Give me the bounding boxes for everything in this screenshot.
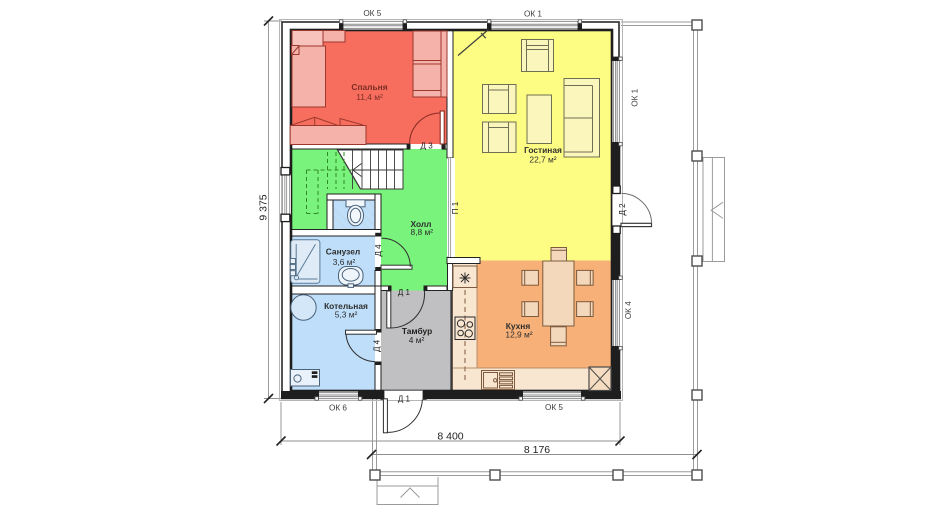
svg-text:11,4 м²: 11,4 м² bbox=[356, 92, 383, 102]
svg-text:8 176: 8 176 bbox=[524, 444, 550, 456]
svg-text:ОК 6: ОК 6 bbox=[329, 403, 347, 412]
svg-text:9 375: 9 375 bbox=[258, 194, 270, 220]
svg-text:ОК 1: ОК 1 bbox=[630, 88, 639, 106]
svg-text:12,9 м²: 12,9 м² bbox=[505, 330, 532, 340]
svg-text:Д 4: Д 4 bbox=[372, 339, 381, 352]
svg-text:8 400: 8 400 bbox=[437, 430, 463, 442]
svg-text:ОК 5: ОК 5 bbox=[363, 9, 381, 18]
svg-text:5,3 м²: 5,3 м² bbox=[335, 310, 358, 320]
svg-text:ОК 5: ОК 5 bbox=[545, 403, 563, 412]
svg-text:Спальня: Спальня bbox=[351, 82, 387, 92]
svg-text:Санузел: Санузел bbox=[326, 247, 360, 257]
svg-text:Д 1: Д 1 bbox=[398, 395, 411, 404]
svg-text:Гостиная: Гостиная bbox=[524, 145, 562, 155]
svg-text:8,8 м²: 8,8 м² bbox=[411, 227, 434, 237]
svg-text:3,6 м²: 3,6 м² bbox=[333, 257, 356, 267]
svg-text:Д 2: Д 2 bbox=[618, 203, 627, 216]
svg-text:ОК 1: ОК 1 bbox=[524, 10, 542, 19]
svg-text:Д 4: Д 4 bbox=[374, 244, 383, 257]
svg-text:Д 1: Д 1 bbox=[398, 288, 411, 297]
svg-text:22,7 м²: 22,7 м² bbox=[529, 155, 556, 165]
svg-text:ОК 4: ОК 4 bbox=[624, 301, 633, 319]
svg-text:Д 3: Д 3 bbox=[421, 141, 434, 150]
svg-text:4 м²: 4 м² bbox=[409, 335, 425, 345]
svg-text:П 1: П 1 bbox=[451, 201, 460, 214]
